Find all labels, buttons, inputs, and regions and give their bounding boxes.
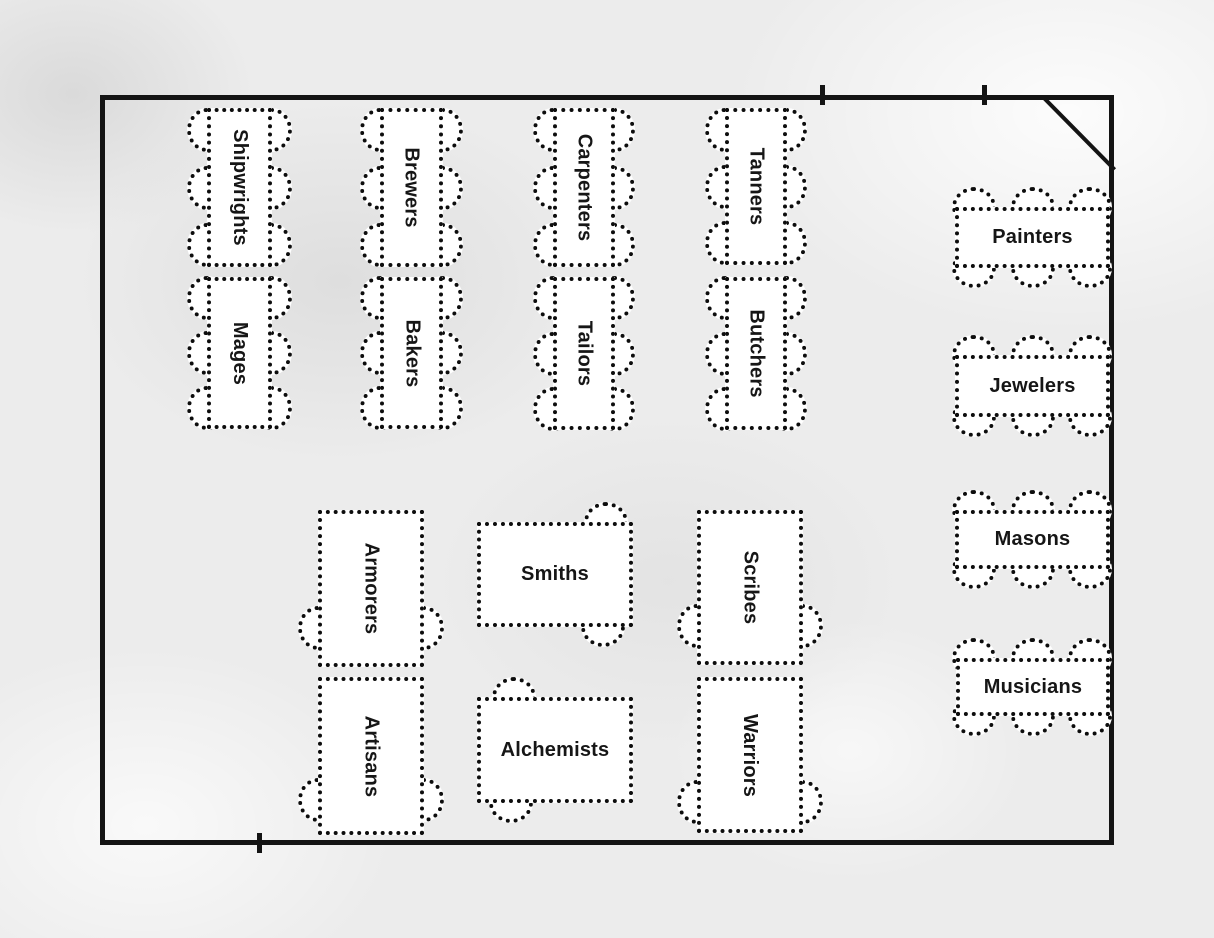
- table-label: Bakers: [400, 319, 423, 387]
- table-alchemists: Alchemists: [477, 697, 633, 803]
- table-top: Smiths: [477, 522, 633, 627]
- table-tailors: Tailors: [553, 277, 615, 430]
- table-label: Armorers: [359, 543, 382, 635]
- table-armorers: Armorers: [318, 510, 424, 667]
- table-label: Artisans: [359, 715, 382, 797]
- table-smiths: Smiths: [477, 522, 633, 627]
- table-top: Shipwrights: [207, 108, 272, 267]
- table-label: Mages: [228, 321, 251, 384]
- table-label: Brewers: [400, 147, 423, 227]
- table-masons: Masons: [955, 510, 1110, 569]
- table-label: Smiths: [521, 563, 589, 586]
- seating-chart-canvas: Shipwrights Mages Brewers Bakers Carpent…: [0, 0, 1214, 938]
- table-label: Shipwrights: [228, 129, 251, 246]
- table-label: Jewelers: [989, 375, 1075, 398]
- table-top: Jewelers: [955, 355, 1110, 417]
- wall-opening-tick-bottom: [257, 833, 262, 853]
- table-scribes: Scribes: [697, 510, 803, 665]
- table-musicians: Musicians: [956, 658, 1110, 716]
- table-tanners: Tanners: [725, 108, 787, 265]
- table-bakers: Bakers: [380, 277, 443, 429]
- table-shipwrights: Shipwrights: [207, 108, 272, 267]
- table-mages: Mages: [207, 277, 272, 429]
- table-label: Scribes: [738, 551, 761, 625]
- table-label: Masons: [995, 528, 1071, 551]
- table-carpenters: Carpenters: [553, 108, 615, 267]
- table-top: Artisans: [318, 677, 424, 835]
- table-top: Musicians: [956, 658, 1110, 716]
- table-label: Tailors: [573, 321, 596, 387]
- table-top: Masons: [955, 510, 1110, 569]
- wall-opening-tick-top-right: [982, 85, 987, 105]
- table-top: Bakers: [380, 277, 443, 429]
- table-painters: Painters: [955, 207, 1110, 268]
- table-top: Brewers: [380, 108, 443, 267]
- table-brewers: Brewers: [380, 108, 443, 267]
- table-label: Warriors: [738, 713, 761, 796]
- table-label: Tanners: [745, 148, 768, 226]
- table-top: Warriors: [697, 677, 803, 833]
- table-butchers: Butchers: [725, 277, 787, 430]
- table-top: Alchemists: [477, 697, 633, 803]
- table-artisans: Artisans: [318, 677, 424, 835]
- table-label: Musicians: [984, 676, 1083, 699]
- table-top: Butchers: [725, 277, 787, 430]
- table-top: Scribes: [697, 510, 803, 665]
- table-warriors: Warriors: [697, 677, 803, 833]
- table-top: Tanners: [725, 108, 787, 265]
- table-label: Carpenters: [573, 134, 596, 242]
- table-top: Mages: [207, 277, 272, 429]
- table-jewelers: Jewelers: [955, 355, 1110, 417]
- table-label: Painters: [992, 226, 1073, 249]
- wall-opening-tick-top-left: [820, 85, 825, 105]
- table-top: Carpenters: [553, 108, 615, 267]
- table-top: Painters: [955, 207, 1110, 268]
- table-label: Butchers: [745, 309, 768, 397]
- table-label: Alchemists: [501, 739, 610, 762]
- table-top: Armorers: [318, 510, 424, 667]
- table-top: Tailors: [553, 277, 615, 430]
